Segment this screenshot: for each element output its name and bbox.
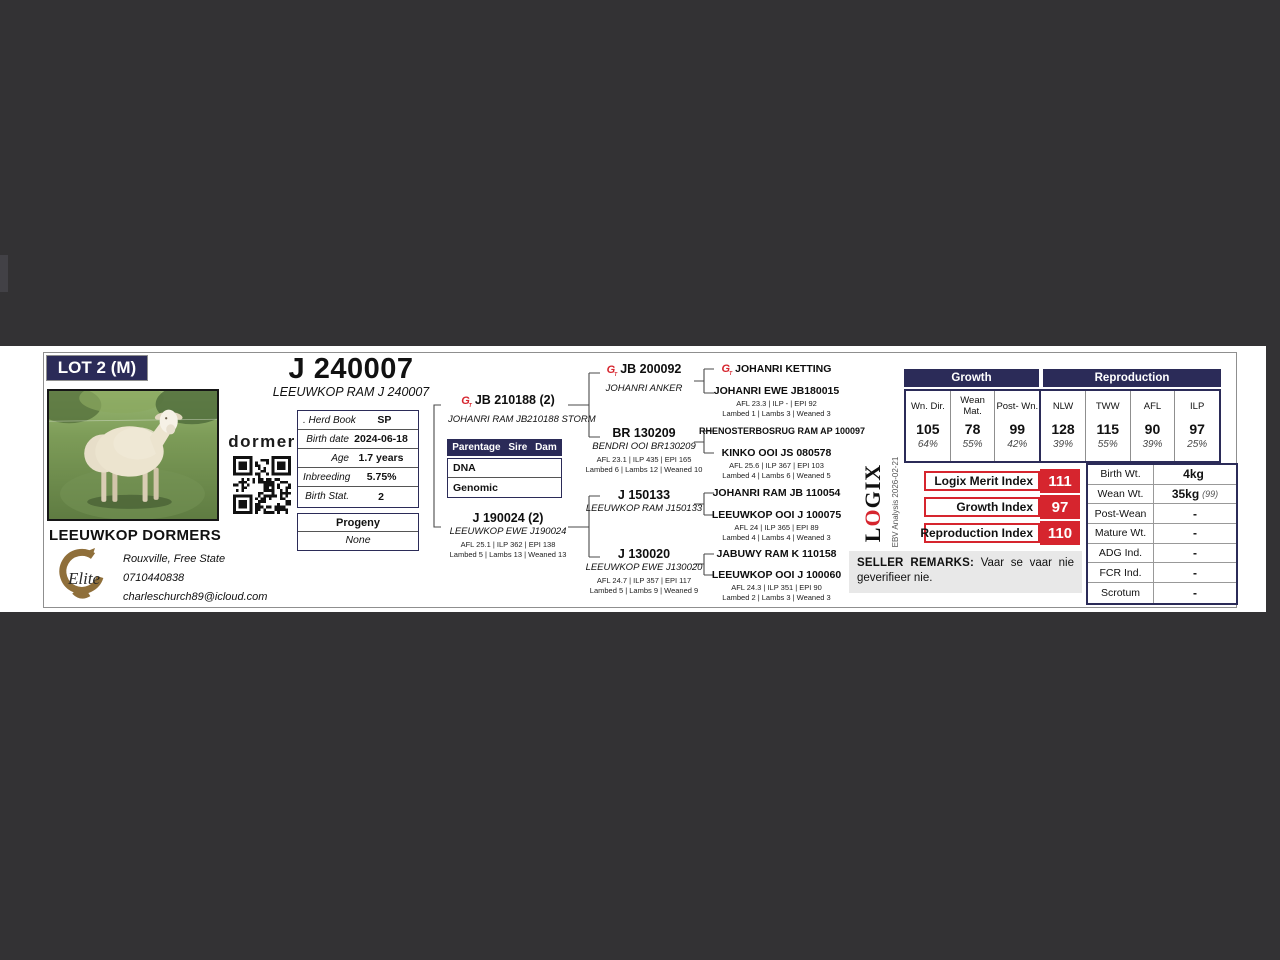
ebv-table: Wn. Dir.10564% Wean Mat.7855% Post- Wn.9… — [904, 389, 1221, 463]
ebv-column: Post- Wn.9942% — [995, 391, 1041, 461]
table-row: Post-Wean - — [1088, 504, 1236, 524]
animal-header: J 240007 LEEUWKOP RAM J 240007 — [231, 354, 471, 399]
sire-id: JB 210188 (2) — [475, 393, 555, 407]
pedigree-node-gen3: LEEUWKOP OOI J 100060 AFL 24.3 | ILP 351… — [699, 569, 854, 602]
sire-name: JOHANRI RAM JB210188 STORM — [448, 414, 568, 426]
ebv-column: ILP9725% — [1175, 391, 1219, 461]
dam-stats: AFL 25.1 | ILP 362 | EPI 138 Lambed 5 | … — [448, 540, 568, 559]
parentage-row-genomic: Genomic — [448, 478, 561, 497]
parentage-row-dna: DNA — [448, 459, 561, 478]
logix-logo: LOGIX — [860, 455, 886, 551]
ebv-column: Wean Mat.7855% — [951, 391, 996, 461]
ebv-column: Wn. Dir.10564% — [906, 391, 951, 461]
info-value: 5.75% — [350, 471, 413, 483]
ram-photo-illustration — [49, 391, 217, 519]
table-row: Birth Wt. 4kg — [1088, 465, 1236, 485]
dam-name: LEEUWKOP EWE J190024 — [448, 526, 568, 538]
info-value: 2 — [349, 491, 413, 503]
pedigree-node-gen3: JABUWY RAM K 110158 — [699, 548, 854, 560]
dam-id: J 190024 (2) — [448, 511, 568, 526]
info-label: Birth date — [303, 434, 349, 445]
logix-merit-index-row: Logix Merit Index 111 — [924, 469, 1080, 493]
svg-text:Elite: Elite — [67, 569, 101, 588]
animal-id-title: J 240007 — [231, 354, 471, 384]
ebv-column: AFL9039% — [1131, 391, 1176, 461]
pedigree-node-gen2: GJB 200092 JOHANRI ANKER — [568, 362, 720, 395]
pedigree-sire: GJB 210188 (2) JOHANRI RAM JB210188 STOR… — [448, 393, 568, 426]
ebv-column: TWW11555% — [1086, 391, 1131, 461]
index-label: Reproduction Index — [924, 523, 1040, 543]
table-row: Inbreeding 5.75% — [298, 468, 418, 487]
qr-code — [233, 456, 291, 514]
owner-contact: Rouxville, Free State 0710440838 charles… — [123, 550, 333, 607]
info-label: Age — [303, 453, 349, 464]
progeny-header: Progeny — [298, 514, 418, 532]
table-row: Scrotum - — [1088, 583, 1236, 603]
info-value: 2024-06-18 — [349, 433, 413, 445]
table-row: Mature Wt. - — [1088, 524, 1236, 544]
pedigree-node-gen2: J 150133 LEEUWKOP RAM J150133 — [568, 488, 720, 515]
info-value: 1.7 years — [349, 452, 413, 464]
table-row: FCR Ind. - — [1088, 563, 1236, 583]
catalog-page: LOT 2 (M) J 240007 LEEUWKOP RAM J 240007 — [0, 346, 1266, 612]
info-value: SP — [356, 414, 413, 426]
viewer-edge-highlight — [0, 255, 8, 292]
table-row: Wean Wt. 35kg(99) — [1088, 485, 1236, 505]
pedigree-node-gen3: JOHANRI EWE JB180015 AFL 23.3 | ILP - | … — [699, 385, 854, 418]
table-row: ADG Ind. - — [1088, 544, 1236, 564]
animal-photo — [47, 389, 219, 521]
seller-remarks: SELLER REMARKS: Vaar se vaar nie geverif… — [849, 551, 1082, 593]
info-label: . Herd Book — [303, 415, 356, 426]
pedigree-node-gen3: JOHANRI RAM JB 110054 — [699, 487, 854, 499]
animal-info-table: . Herd Book SP Birth date 2024-06-18 Age… — [297, 410, 419, 508]
info-label: Birth Stat. — [303, 491, 349, 502]
lot-badge: LOT 2 (M) — [46, 355, 148, 381]
owner-name: LEEUWKOP DORMERS — [49, 527, 221, 544]
parentage-header: Parentage Sire Dam — [447, 439, 562, 456]
qr-code-icon — [233, 456, 291, 514]
weights-table: Birth Wt. 4kg Wean Wt. 35kg(99) Post-Wea… — [1086, 463, 1238, 605]
index-value: 97 — [1040, 495, 1080, 519]
table-row: Birth Stat. 2 — [298, 487, 418, 506]
index-value: 111 — [1040, 469, 1080, 493]
genomic-test-icon: G — [607, 364, 618, 376]
info-label: Inbreeding — [303, 472, 350, 483]
pedigree-node-gen3: KINKO OOI JS 080578 AFL 25.6 | ILP 367 |… — [699, 447, 854, 480]
growth-table-header: Growth — [904, 369, 1039, 387]
owner-email: charleschurch89@icloud.com — [123, 588, 333, 607]
genomic-test-icon: G — [722, 363, 733, 375]
pedigree-node-gen3: LEEUWKOP OOI J 100075 AFL 24 | ILP 365 |… — [699, 509, 854, 542]
parentage-verification-box: Parentage Sire Dam DNA Genomic — [447, 439, 562, 498]
dormer-breed-logo: dormer — [224, 432, 300, 452]
owner-phone: 0710440838 — [123, 569, 333, 588]
growth-index-row: Growth Index 97 — [924, 495, 1080, 519]
table-row: Age 1.7 years — [298, 449, 418, 468]
pedigree-node-gen2: BR 130209 BENDRI OOI BR130209 AFL 23.1 |… — [568, 426, 720, 474]
pedigree-node-gen3: GJOHANRI KETTING — [699, 363, 854, 380]
table-row: Birth date 2024-06-18 — [298, 430, 418, 449]
progeny-box: Progeny None — [297, 513, 419, 551]
pdf-viewer-background: LOT 2 (M) J 240007 LEEUWKOP RAM J 240007 — [0, 0, 1280, 960]
index-value: 110 — [1040, 521, 1080, 545]
table-row: . Herd Book SP — [298, 411, 418, 430]
reproduction-index-row: Reproduction Index 110 — [924, 521, 1080, 545]
owner-location: Rouxville, Free State — [123, 550, 333, 569]
ebv-column: NLW12839% — [1041, 391, 1086, 461]
index-label: Logix Merit Index — [924, 471, 1040, 491]
logix-o-icon: O — [860, 508, 885, 526]
pedigree-node-gen2: J 130020 LEEUWKOP EWE J130020 AFL 24.7 |… — [568, 547, 720, 595]
index-label: Growth Index — [924, 497, 1040, 517]
genomic-test-icon: G — [461, 395, 472, 407]
pedigree-dam: J 190024 (2) LEEUWKOP EWE J190024 AFL 25… — [448, 511, 568, 559]
elite-breeders-emblem-icon: Elite — [56, 547, 108, 603]
seller-remarks-label: SELLER REMARKS: — [857, 557, 974, 569]
ebv-analysis-date: EBV Analysis 2026-02-21 — [890, 456, 902, 548]
lot-card: LOT 2 (M) J 240007 LEEUWKOP RAM J 240007 — [43, 352, 1237, 608]
reproduction-table-header: Reproduction — [1043, 369, 1221, 387]
pedigree-node-gen3: RHENOSTERBOSRUG RAM AP 100097 — [699, 425, 854, 437]
progeny-value: None — [298, 532, 418, 548]
animal-name-subtitle: LEEUWKOP RAM J 240007 — [231, 385, 471, 399]
